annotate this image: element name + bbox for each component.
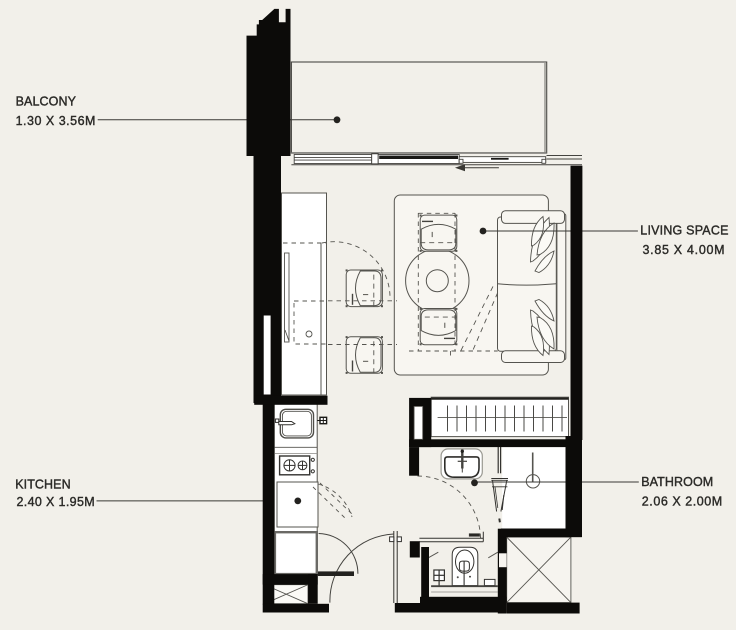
svg-text:2.40 X 1.95M: 2.40 X 1.95M bbox=[17, 495, 96, 509]
svg-text:LIVING SPACE: LIVING SPACE bbox=[640, 224, 728, 238]
svg-text:2.06 X 2.00M: 2.06 X 2.00M bbox=[642, 495, 723, 509]
svg-text:1.30 X 3.56M: 1.30 X 3.56M bbox=[16, 114, 96, 128]
svg-text:KITCHEN: KITCHEN bbox=[15, 478, 71, 492]
svg-text:3.85 X 4.00M: 3.85 X 4.00M bbox=[643, 243, 726, 257]
svg-text:BATHROOM: BATHROOM bbox=[641, 475, 713, 489]
svg-text:BALCONY: BALCONY bbox=[16, 95, 77, 109]
